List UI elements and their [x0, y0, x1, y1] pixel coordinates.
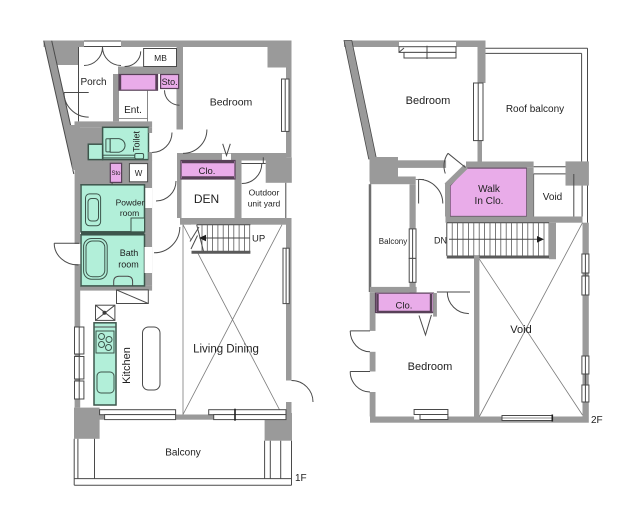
- svg-text:W: W: [135, 169, 143, 178]
- svg-text:Toilet: Toilet: [132, 130, 142, 152]
- svg-text:Sto.: Sto.: [162, 77, 178, 87]
- svg-text:DN: DN: [434, 236, 447, 246]
- svg-text:MB: MB: [154, 53, 167, 63]
- svg-text:DEN: DEN: [194, 192, 219, 206]
- svg-text:room: room: [120, 208, 139, 218]
- svg-text:Kitchen: Kitchen: [121, 347, 133, 384]
- svg-text:Ent.: Ent.: [124, 105, 142, 116]
- svg-text:Clo.: Clo.: [199, 166, 216, 177]
- svg-text:unit yard: unit yard: [248, 199, 281, 209]
- svg-text:Void: Void: [510, 324, 531, 336]
- svg-text:Bedroom: Bedroom: [408, 361, 453, 373]
- svg-text:Powder: Powder: [116, 198, 145, 208]
- svg-text:Void: Void: [543, 192, 562, 203]
- svg-text:Porch: Porch: [80, 77, 106, 88]
- svg-text:In Clo.: In Clo.: [475, 196, 504, 207]
- svg-text:UP: UP: [252, 234, 265, 245]
- svg-text:Balcony: Balcony: [379, 237, 407, 246]
- svg-text:Sto: Sto: [111, 171, 121, 177]
- svg-text:2F: 2F: [591, 415, 603, 426]
- svg-text:Bath: Bath: [120, 248, 139, 258]
- svg-text:Walk: Walk: [478, 184, 501, 195]
- svg-text:Clo.: Clo.: [396, 301, 413, 312]
- svg-text:Living Dining: Living Dining: [193, 344, 259, 356]
- svg-text:1F: 1F: [295, 473, 307, 484]
- svg-text:Roof balcony: Roof balcony: [506, 104, 564, 115]
- svg-text:Outdoor: Outdoor: [249, 188, 280, 198]
- svg-text:Bedroom: Bedroom: [406, 95, 451, 107]
- svg-text:Balcony: Balcony: [165, 448, 201, 459]
- svg-text:room: room: [118, 260, 139, 270]
- svg-text:Bedroom: Bedroom: [210, 97, 253, 109]
